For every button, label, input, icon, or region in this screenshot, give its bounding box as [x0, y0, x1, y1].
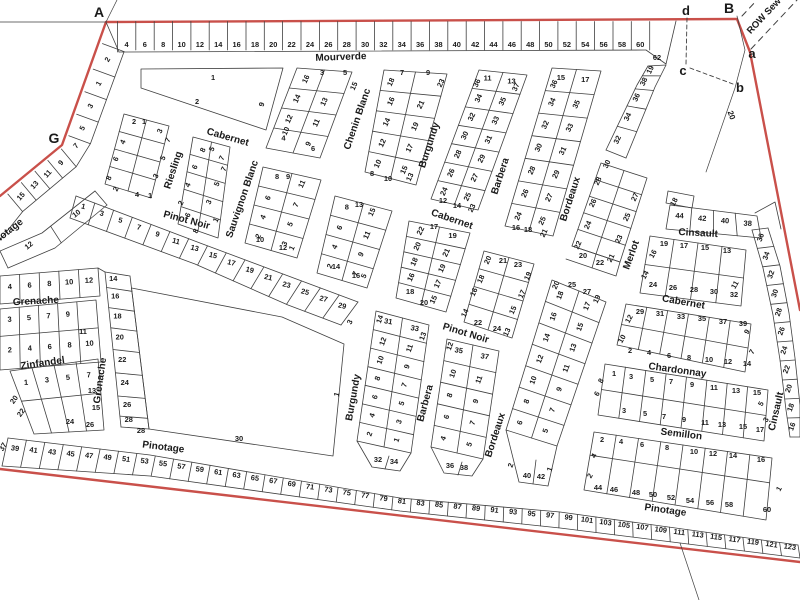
svg-text:37: 37: [719, 317, 727, 326]
svg-text:40: 40: [721, 216, 730, 225]
svg-text:6: 6: [27, 281, 32, 290]
svg-text:9: 9: [682, 415, 686, 424]
svg-text:35: 35: [698, 314, 706, 323]
svg-text:99: 99: [564, 512, 573, 522]
svg-text:93: 93: [508, 507, 517, 517]
svg-text:7: 7: [400, 68, 404, 77]
svg-text:26: 26: [324, 40, 332, 49]
svg-text:8: 8: [161, 40, 165, 49]
svg-text:8: 8: [370, 169, 374, 178]
svg-text:18: 18: [113, 312, 121, 321]
svg-text:117: 117: [728, 534, 741, 545]
svg-text:47: 47: [84, 450, 93, 460]
svg-text:50: 50: [544, 40, 552, 49]
svg-text:28: 28: [125, 415, 133, 424]
svg-text:18: 18: [406, 287, 414, 296]
svg-text:b: b: [736, 80, 744, 95]
svg-text:15: 15: [753, 388, 761, 397]
svg-text:14: 14: [109, 274, 118, 283]
svg-text:54: 54: [686, 496, 695, 505]
svg-text:48: 48: [632, 488, 640, 497]
svg-text:44: 44: [489, 40, 498, 49]
svg-text:62: 62: [653, 53, 661, 62]
svg-text:69: 69: [287, 479, 296, 489]
svg-text:24: 24: [306, 40, 315, 49]
svg-text:51: 51: [121, 454, 130, 464]
svg-text:20: 20: [116, 333, 124, 342]
svg-text:28: 28: [137, 426, 145, 435]
svg-text:6: 6: [640, 440, 644, 449]
svg-text:89: 89: [471, 503, 480, 513]
svg-text:36: 36: [416, 40, 424, 49]
svg-text:54: 54: [581, 40, 590, 49]
svg-text:26: 26: [123, 400, 131, 409]
svg-text:8: 8: [67, 340, 72, 349]
svg-text:107: 107: [636, 522, 649, 533]
svg-text:24: 24: [649, 280, 658, 289]
svg-text:56: 56: [706, 498, 714, 507]
svg-text:57: 57: [177, 461, 186, 471]
svg-text:10: 10: [690, 447, 698, 456]
svg-text:48: 48: [526, 40, 534, 49]
svg-text:14: 14: [453, 201, 462, 210]
svg-text:13: 13: [355, 200, 363, 209]
svg-text:44: 44: [675, 211, 685, 220]
svg-text:87: 87: [453, 501, 462, 511]
svg-text:5: 5: [343, 68, 347, 77]
svg-text:Cinsault: Cinsault: [678, 227, 719, 240]
svg-text:109: 109: [654, 524, 667, 535]
svg-text:7: 7: [86, 370, 91, 379]
svg-text:60: 60: [636, 40, 644, 49]
svg-text:1: 1: [148, 191, 152, 200]
svg-text:75: 75: [342, 487, 351, 497]
svg-text:32: 32: [374, 455, 382, 464]
svg-text:14: 14: [729, 451, 738, 460]
svg-text:20: 20: [269, 40, 277, 49]
svg-text:3: 3: [45, 375, 50, 384]
svg-text:13: 13: [723, 246, 731, 255]
svg-text:9: 9: [286, 172, 290, 181]
svg-text:26: 26: [669, 283, 677, 292]
svg-text:46: 46: [508, 40, 516, 49]
svg-text:8: 8: [345, 202, 349, 211]
svg-text:15: 15: [701, 243, 709, 252]
svg-text:63: 63: [232, 470, 241, 480]
svg-text:39: 39: [10, 443, 19, 453]
svg-text:10: 10: [85, 339, 94, 348]
svg-text:60: 60: [763, 505, 771, 514]
svg-text:56: 56: [599, 40, 607, 49]
svg-text:7: 7: [46, 311, 51, 320]
svg-text:16: 16: [512, 223, 520, 232]
svg-text:55: 55: [158, 458, 167, 468]
svg-text:50: 50: [649, 490, 657, 499]
svg-text:8: 8: [687, 353, 691, 362]
svg-text:12: 12: [196, 40, 204, 49]
svg-text:95: 95: [527, 508, 536, 518]
svg-text:30: 30: [235, 434, 243, 443]
svg-text:77: 77: [361, 490, 370, 500]
svg-text:11: 11: [710, 383, 718, 392]
svg-text:79: 79: [379, 493, 388, 503]
svg-text:17: 17: [756, 425, 764, 434]
svg-text:8: 8: [275, 172, 279, 181]
svg-text:42: 42: [471, 40, 479, 49]
svg-text:35: 35: [454, 345, 464, 355]
svg-text:2: 2: [195, 97, 199, 106]
svg-text:26: 26: [86, 420, 94, 429]
svg-text:7: 7: [669, 377, 673, 386]
svg-text:67: 67: [269, 476, 278, 486]
svg-text:12: 12: [724, 357, 732, 366]
svg-text:32: 32: [730, 290, 738, 299]
svg-text:113: 113: [691, 529, 704, 540]
svg-text:91: 91: [490, 505, 499, 515]
svg-text:11: 11: [79, 327, 87, 336]
svg-text:6: 6: [311, 144, 315, 153]
svg-text:10: 10: [705, 355, 713, 364]
svg-text:52: 52: [667, 493, 675, 502]
svg-text:28: 28: [690, 285, 698, 294]
svg-text:41: 41: [29, 445, 38, 455]
svg-text:2: 2: [8, 345, 13, 354]
svg-text:37: 37: [480, 351, 490, 361]
svg-text:6: 6: [143, 40, 147, 49]
svg-text:2: 2: [628, 346, 632, 355]
svg-text:71: 71: [305, 482, 314, 492]
svg-text:45: 45: [66, 449, 75, 459]
svg-text:5: 5: [66, 373, 71, 382]
svg-text:44: 44: [594, 483, 603, 492]
svg-text:31: 31: [656, 309, 664, 318]
svg-text:81: 81: [397, 496, 406, 506]
svg-text:16: 16: [757, 455, 765, 464]
svg-text:19: 19: [660, 239, 668, 248]
svg-text:119: 119: [747, 537, 760, 548]
svg-text:3: 3: [7, 315, 12, 324]
svg-text:15: 15: [739, 422, 747, 431]
svg-text:39: 39: [739, 319, 747, 328]
svg-text:11: 11: [484, 74, 492, 83]
svg-text:33: 33: [410, 323, 420, 333]
svg-text:d: d: [682, 3, 690, 18]
svg-text:123: 123: [783, 541, 796, 552]
svg-text:121: 121: [765, 539, 778, 550]
svg-text:10: 10: [65, 277, 74, 286]
svg-text:23: 23: [514, 260, 522, 269]
svg-text:24: 24: [493, 324, 502, 333]
svg-text:1: 1: [612, 369, 616, 378]
svg-text:c: c: [679, 63, 686, 78]
svg-text:12: 12: [439, 196, 447, 205]
svg-text:22: 22: [596, 258, 604, 267]
svg-text:33: 33: [677, 312, 685, 321]
svg-text:13: 13: [732, 386, 740, 395]
svg-text:22: 22: [287, 40, 295, 49]
svg-text:22: 22: [118, 355, 126, 364]
svg-text:9: 9: [66, 310, 71, 319]
svg-text:a: a: [748, 46, 756, 61]
svg-text:3: 3: [629, 372, 633, 381]
svg-text:115: 115: [710, 532, 723, 543]
svg-text:32: 32: [379, 40, 387, 49]
svg-text:17: 17: [680, 241, 688, 250]
svg-text:8: 8: [47, 279, 52, 288]
svg-text:46: 46: [610, 485, 618, 494]
svg-text:18: 18: [524, 225, 532, 234]
svg-text:61: 61: [214, 467, 223, 477]
svg-text:52: 52: [563, 40, 571, 49]
svg-text:17: 17: [430, 222, 438, 231]
svg-text:12: 12: [85, 276, 94, 285]
svg-text:Mourverde: Mourverde: [315, 51, 367, 64]
svg-text:30: 30: [710, 287, 718, 296]
svg-text:24: 24: [121, 378, 130, 387]
svg-text:5: 5: [643, 409, 647, 418]
svg-text:105: 105: [617, 519, 630, 530]
svg-text:10: 10: [256, 235, 264, 244]
svg-text:58: 58: [618, 40, 626, 49]
svg-text:34: 34: [398, 40, 407, 49]
svg-text:20: 20: [579, 251, 587, 260]
svg-text:49: 49: [103, 452, 112, 462]
svg-text:73: 73: [324, 485, 333, 495]
svg-text:19: 19: [448, 231, 456, 240]
svg-text:12: 12: [709, 449, 717, 458]
svg-text:12: 12: [279, 243, 287, 252]
svg-text:29: 29: [636, 307, 644, 316]
svg-text:22: 22: [474, 318, 482, 327]
svg-text:18: 18: [251, 40, 259, 49]
svg-text:65: 65: [250, 473, 259, 483]
svg-text:83: 83: [416, 498, 425, 508]
svg-text:6: 6: [667, 351, 671, 360]
svg-text:30: 30: [361, 40, 369, 49]
svg-text:38: 38: [743, 219, 752, 228]
svg-text:G: G: [49, 130, 60, 146]
svg-text:9: 9: [426, 68, 430, 77]
svg-text:A: A: [94, 4, 104, 20]
svg-text:7: 7: [662, 412, 666, 421]
svg-text:13: 13: [718, 420, 726, 429]
svg-text:3: 3: [622, 406, 626, 415]
svg-text:21: 21: [499, 256, 507, 265]
svg-text:58: 58: [725, 500, 733, 509]
svg-text:103: 103: [599, 517, 612, 528]
svg-text:8: 8: [665, 443, 669, 452]
svg-text:2: 2: [132, 117, 136, 126]
svg-text:24: 24: [66, 417, 75, 426]
svg-text:20: 20: [420, 298, 428, 307]
svg-text:40: 40: [453, 40, 461, 49]
svg-text:16: 16: [111, 292, 119, 301]
svg-text:11: 11: [701, 418, 709, 427]
svg-text:14: 14: [214, 40, 223, 49]
svg-text:42: 42: [698, 214, 707, 223]
svg-text:16: 16: [232, 40, 240, 49]
svg-text:97: 97: [545, 510, 554, 520]
svg-text:59: 59: [195, 464, 204, 474]
svg-text:36: 36: [446, 461, 454, 470]
svg-text:42: 42: [537, 472, 545, 481]
svg-text:1: 1: [142, 117, 146, 126]
svg-text:40: 40: [523, 471, 531, 480]
svg-text:10: 10: [384, 174, 392, 183]
svg-text:25: 25: [568, 280, 576, 289]
svg-text:38: 38: [460, 463, 468, 472]
svg-text:6: 6: [47, 342, 52, 351]
svg-text:1: 1: [211, 73, 215, 82]
svg-text:101: 101: [580, 515, 593, 526]
svg-text:28: 28: [343, 40, 351, 49]
svg-text:53: 53: [140, 456, 149, 466]
svg-text:43: 43: [47, 447, 56, 457]
svg-text:1: 1: [24, 378, 29, 387]
svg-text:14: 14: [332, 262, 341, 271]
svg-text:B: B: [724, 0, 734, 16]
svg-text:5: 5: [27, 313, 32, 322]
svg-text:17: 17: [581, 75, 589, 84]
svg-text:5: 5: [650, 375, 654, 384]
svg-text:14: 14: [743, 359, 752, 368]
svg-text:9: 9: [690, 380, 694, 389]
svg-text:10: 10: [177, 40, 185, 49]
svg-text:111: 111: [673, 527, 686, 538]
svg-text:15: 15: [557, 73, 565, 82]
svg-text:3: 3: [320, 68, 324, 77]
svg-text:85: 85: [434, 500, 443, 510]
svg-text:2: 2: [600, 435, 604, 444]
svg-text:38: 38: [434, 40, 442, 49]
svg-text:34: 34: [390, 457, 399, 466]
